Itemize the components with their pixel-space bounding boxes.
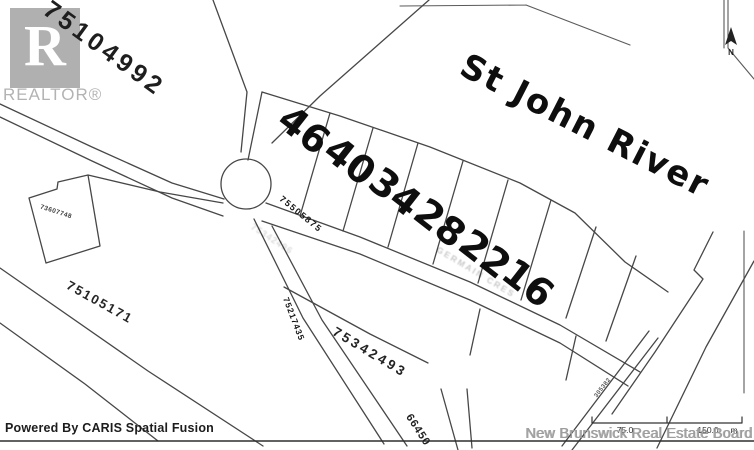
lower-left-boundaries xyxy=(0,268,263,446)
powered-by-caption: Powered By CARIS Spatial Fusion xyxy=(5,421,214,435)
scale-bar-line xyxy=(592,417,742,423)
small-parcel-outline xyxy=(29,175,223,263)
steep-road-edges xyxy=(254,219,407,446)
cul-de-sac-bulb xyxy=(221,159,271,209)
access-road-edges xyxy=(0,104,224,216)
north-arrow-icon xyxy=(725,27,737,45)
right-corridor-lines xyxy=(562,232,754,450)
north-arrow-label: N xyxy=(728,48,734,57)
cadastral-map-canvas: R REALTOR® St John River 46 40 34 28 22 … xyxy=(0,0,754,450)
realtor-wordmark: REALTOR® xyxy=(3,85,102,105)
board-watermark: New Brunswick Real Estate Board xyxy=(526,426,753,442)
